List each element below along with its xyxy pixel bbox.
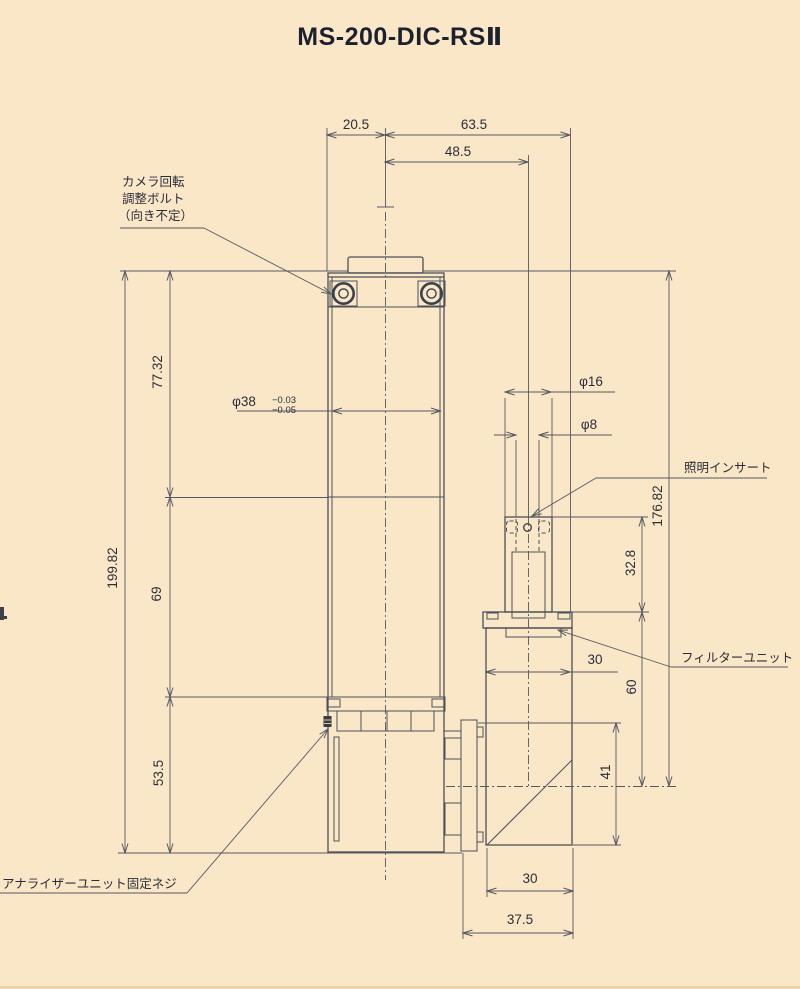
clipped-label-fragment xyxy=(0,607,7,620)
camera-bolt-label-line1: カメラ回転 xyxy=(122,175,185,189)
dim-lower-box-height: 41 xyxy=(598,764,613,779)
dim-bottom-width: 30 xyxy=(522,871,537,886)
dim-bottom-total-width: 37.5 xyxy=(507,912,533,927)
dim-body-dia: φ38 xyxy=(232,394,256,409)
dim-left-lower: 53.5 xyxy=(151,760,166,786)
analyzer-fixing-screw xyxy=(324,716,332,727)
dim-port-dia-outer: φ16 xyxy=(579,374,603,389)
dim-filter-top-width: 30 xyxy=(587,652,602,667)
dim-top-span-right: 63.5 xyxy=(461,117,487,132)
technical-drawing-page: MS-200-DIC-RSⅡ xyxy=(0,0,800,989)
analyzer-screw-label: アナライザーユニット固定ネジ xyxy=(2,876,177,891)
analyzer-unit xyxy=(327,697,445,841)
dim-left-total: 199.82 xyxy=(105,547,120,588)
dim-body-dia-tol-bottom: −0.05 xyxy=(272,405,296,416)
extension-lines xyxy=(118,128,676,939)
dim-right-total: 176.82 xyxy=(650,485,665,526)
filter-unit-box xyxy=(486,628,572,845)
dimension-lines xyxy=(125,135,669,933)
camera-bolt-label-line3: （向き不定） xyxy=(118,208,193,223)
filter-unit-flange xyxy=(483,612,572,637)
camera-bolt-right xyxy=(418,281,445,306)
dovetail-rail xyxy=(444,720,483,851)
main-body-outline xyxy=(328,273,444,852)
mirror-diagonal xyxy=(487,760,572,845)
dim-top-span-inner: 48.5 xyxy=(445,144,471,159)
camera-bolt-left xyxy=(330,281,357,306)
dim-top-offset: 20.5 xyxy=(343,117,369,132)
dim-port-dia-inner: φ8 xyxy=(581,417,597,432)
dimension-drawing: 20.5 63.5 48.5 199.82 77.32 69 53.5 φ38 … xyxy=(0,0,800,989)
dimension-labels: 20.5 63.5 48.5 199.82 77.32 69 53.5 φ38 … xyxy=(105,117,665,927)
filter-unit-label: フィルターユニット xyxy=(681,651,793,665)
camera-bolt-label-line2: 調整ボルト xyxy=(122,191,185,206)
dim-left-mid: 69 xyxy=(149,586,164,601)
dim-left-upper: 77.32 xyxy=(150,355,165,389)
illumination-insert-label: 照明インサート xyxy=(684,461,772,475)
centerlines xyxy=(377,128,678,880)
dim-axis-height: 60 xyxy=(624,679,639,694)
dim-port-height: 32.8 xyxy=(623,550,638,576)
annotation-labels: カメラ回転 調整ボルト （向き不定） 照明インサート フィルターユニット アナラ… xyxy=(2,175,793,891)
